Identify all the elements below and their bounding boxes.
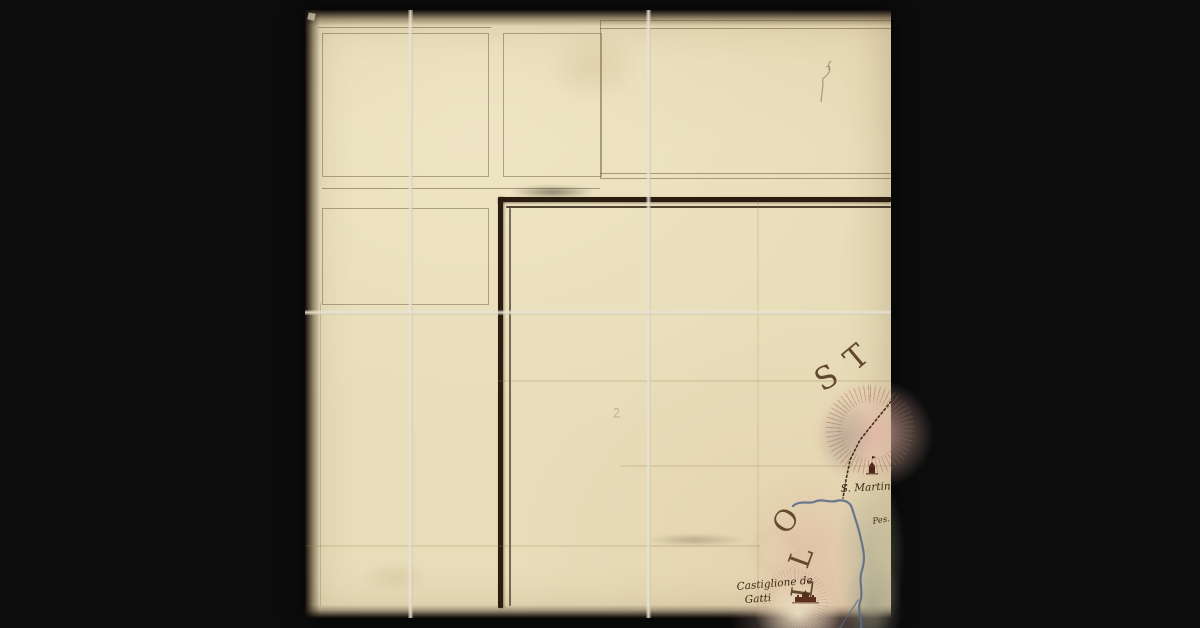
sheet-edge-top: [305, 10, 891, 26]
pencil-line: [600, 20, 601, 178]
pencil-line: [320, 303, 321, 606]
crease-line: [305, 545, 760, 547]
pencil-line: [600, 173, 891, 174]
crease-line: [620, 465, 891, 467]
pencil-line: [600, 28, 891, 29]
river-branch: [840, 600, 858, 628]
pencil-line: [318, 27, 491, 28]
pencil-line: [322, 188, 600, 189]
corner-tab: [307, 12, 315, 20]
curved-letter: L: [782, 543, 821, 573]
pencil-line: [600, 178, 891, 179]
paper-stain: [360, 560, 430, 594]
photo-stage: T S O L L S. Martino Pes. Castiglione de…: [0, 0, 1200, 628]
pencil-panel: [322, 208, 489, 305]
label-stream-fragment: Pes.: [871, 514, 891, 527]
pencil-line: [600, 20, 891, 21]
crease-line: [757, 200, 759, 618]
curved-letter: S: [808, 357, 844, 399]
map-frame-top-inner: [506, 206, 891, 208]
curved-letter: O: [765, 501, 806, 540]
crease-line: [498, 380, 891, 382]
map-detail-layer: T S O L L S. Martino Pes. Castiglione de…: [685, 330, 891, 628]
pencil-panel: [503, 33, 602, 177]
map-sheet: T S O L L S. Martino Pes. Castiglione de…: [305, 10, 891, 618]
pencil-squiggle: [810, 55, 840, 110]
map-frame-top: [498, 197, 891, 202]
fold-line-horizontal: [305, 310, 891, 315]
curved-letter: T: [837, 337, 876, 378]
tiny-mark: [611, 406, 623, 420]
label-s-martino: S. Martino: [841, 480, 891, 495]
pencil-panel: [322, 33, 489, 177]
